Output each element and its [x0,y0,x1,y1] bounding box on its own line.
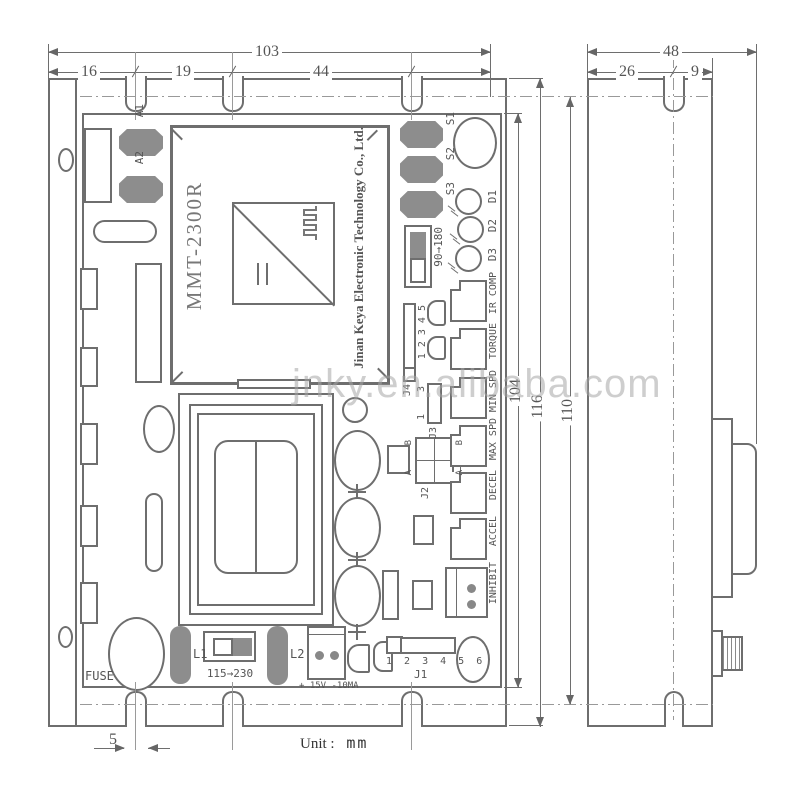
pot-notch [450,280,461,291]
mount-hole-topright [453,117,497,169]
arrow [566,695,574,705]
terminal-a1-label: A1 [134,104,145,117]
voltage-switch-label: 115→230 [200,668,260,679]
centerline [135,682,136,750]
datum-line-bottom [80,704,713,705]
side-mount-slot [663,76,685,112]
arrow [536,717,544,727]
led-d1 [455,188,482,215]
dc-symbol-bar [257,263,259,285]
centerline [232,682,233,750]
terminal-s2 [400,156,443,183]
edge-component [80,505,98,547]
edge-component [80,423,98,465]
transformer-core-divider [255,441,257,573]
fuse-label: FUSE [85,670,114,682]
pot-notch [450,518,461,529]
jumper-j2-label: J2 [421,487,431,499]
edge-component [80,347,98,387]
power-rating-label: + 15V -10MA [299,682,359,691]
mount-slot [222,76,244,112]
terminal-s1-label: S1 [445,112,456,125]
terminal-a2 [119,176,163,203]
arrow [587,68,597,76]
component-block [412,580,433,610]
inductor-l2-label: L2 [290,648,304,660]
side-mount-notch [664,691,684,727]
component-block [135,263,162,383]
pot-accel-label: ACCEL [489,516,499,546]
led-d2-label: D2 [487,219,498,232]
mount-slot [401,691,423,727]
inhibit-divider [456,569,457,616]
arrow [48,68,58,76]
capacitor [334,430,381,491]
inhibit-label: INHIBIT [489,562,499,604]
side-centerline [673,56,674,720]
inhibit-pin [467,584,476,593]
arrow [703,68,713,76]
voltage-switch-knob [233,638,252,656]
pot-max-spd-label: MAX SPD [489,418,499,460]
side-connector-body [731,443,757,575]
arrow [481,48,491,56]
dim-seg-16: 16 [78,64,100,80]
dim-side-9: 9 [688,64,702,80]
side-adjust-knob [721,636,743,671]
regulator-outline [347,644,370,673]
centerline [411,682,412,750]
jumper-j2-b-right: B [456,440,465,445]
pot-decel-label: DECEL [489,470,499,500]
ic-company-label: Jinan Keya Electronic Technology Co., Lt… [352,127,365,369]
component-pill [145,493,163,572]
jumper-j2-a-right: A [456,470,465,475]
power-terminal-pin [315,651,324,660]
dim-side-26: 26 [616,64,638,80]
datum-line-top [80,96,713,97]
connector-j4 [403,303,416,369]
component-pill [93,220,157,243]
pot-torque-label: TORQUE [489,323,499,359]
centerline [232,52,233,120]
arrow [587,48,597,56]
led-d3-label: D3 [487,248,498,261]
pot-ir-comp [450,280,487,322]
inductor-l1-label: L1 [193,648,207,660]
range-switch-knob [410,232,426,258]
fuse-holder [108,617,165,691]
arrow [514,113,522,123]
dim-side-total: 48 [660,44,682,60]
component-block [84,128,112,203]
inhibit-pin [467,600,476,609]
terminal-a2-label: A2 [134,151,145,164]
pot-max-spd [450,425,487,467]
transistor-outline [427,336,446,360]
led-d2 [457,216,484,243]
arrow [115,744,125,752]
component-round [143,405,175,453]
engineering-drawing: 103 16 19 44 48 26 9 104 116 110 5 Unit … [0,0,800,800]
led-d3 [455,245,482,272]
arrow [48,48,58,56]
connector-j1 [400,637,456,654]
centerline [411,52,412,120]
terminal-s2-label: S2 [445,147,456,160]
component-block [382,570,399,620]
arrow [747,48,757,56]
side-connector-flange [711,418,733,598]
jumper-j3-label: J3 [429,427,439,439]
power-terminal-pin [330,651,339,660]
ic-model-label: MMT-2300R [184,181,205,310]
dim-seg-19: 19 [172,64,194,80]
inductor-l1 [170,626,191,684]
voltage-switch-slot [213,638,233,656]
watermark: jnky.en.alibaba.com [292,362,662,407]
range-switch-slot [410,258,426,283]
pot-notch [450,425,461,436]
connector-j1-pins: 1 2 3 4 5 6 [386,657,485,667]
mount-slot [125,691,147,727]
transistor-outline [427,300,446,326]
inductor-l2 [267,626,288,685]
unit-note: Unit : mm [300,734,368,753]
rail-hole-top [58,148,74,172]
edge-component [80,582,98,624]
terminal-s1 [400,121,443,148]
arrow [481,68,491,76]
arrow [148,744,158,752]
jumper-j3-pin1: 1 [417,414,427,420]
edge-component [80,268,98,310]
connector-j1-label: J1 [414,669,427,680]
pot-ir-comp-label: IR COMP [489,272,499,314]
unit-value: mm [346,734,368,752]
unit-label: Unit : [300,736,335,752]
range-switch-label: 90→180 [433,227,444,267]
pot-accel [450,518,487,560]
jumper-j2-divider [417,460,452,461]
arrow [536,78,544,88]
component-block [413,515,434,545]
terminal-s3 [400,191,443,218]
polarity-mark [356,624,358,640]
jumper-j2-a-left: A [405,470,414,475]
dc-symbol-bar [266,263,268,285]
capacitor [334,497,381,558]
mount-slot [222,691,244,727]
pwm-symbol [296,206,324,242]
terminal-s3-label: S3 [445,182,456,195]
arrow [514,678,522,688]
led-d1-label: D1 [487,190,498,203]
left-rail-line [75,80,77,725]
inhibit-terminal [445,567,488,618]
dim-seg-44: 44 [310,64,332,80]
jumper-j2-b-left: B [405,440,414,445]
pot-decel [450,472,487,514]
ext-line [756,44,757,444]
dim-front-total: 103 [252,44,282,60]
dim-line [48,72,491,73]
pot-notch [450,328,461,339]
capacitor [334,565,381,627]
mount-slot [401,76,423,112]
connector-j4-pins: 1 2 3 4 5 [418,305,428,359]
power-terminal-line [308,634,345,635]
rail-hole-bottom [58,626,73,648]
arrow [566,97,574,107]
